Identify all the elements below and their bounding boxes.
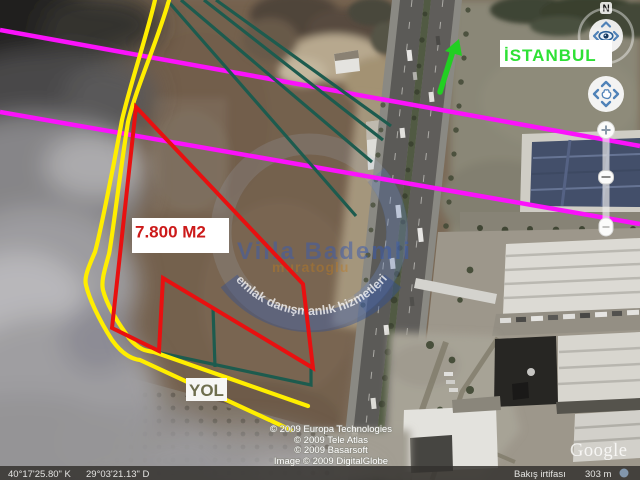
svg-text:© 2009 Europa Technologies: © 2009 Europa Technologies: [270, 424, 392, 435]
svg-text:İSTANBUL: İSTANBUL: [504, 46, 597, 65]
svg-text:Google: Google: [570, 441, 627, 461]
svg-text:303 m: 303 m: [585, 469, 611, 480]
svg-text:Bakış irtifası: Bakış irtifası: [514, 469, 566, 480]
svg-text:YOL: YOL: [189, 381, 224, 400]
svg-text:40°17'25.80" K: 40°17'25.80" K: [8, 469, 72, 480]
svg-text:7.800 M2: 7.800 M2: [135, 223, 206, 242]
svg-text:29°03'21.13" D: 29°03'21.13" D: [86, 469, 150, 480]
svg-text:Image © 2009 DigitalGlobe: Image © 2009 DigitalGlobe: [274, 456, 388, 467]
svg-text:© 2009 Basarsoft: © 2009 Basarsoft: [294, 445, 368, 456]
